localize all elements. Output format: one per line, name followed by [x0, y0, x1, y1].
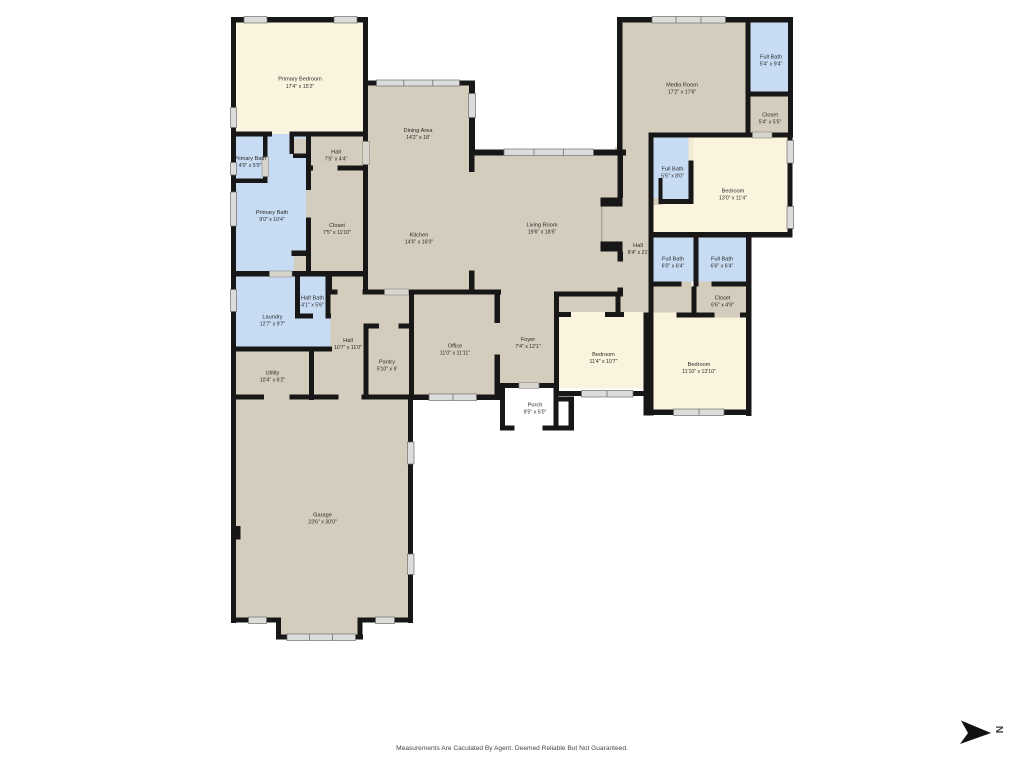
svg-text:Utility: Utility — [266, 371, 280, 377]
svg-text:13'0" x 11'4": 13'0" x 11'4" — [719, 196, 747, 202]
svg-text:17'4" x 15'2": 17'4" x 15'2" — [286, 84, 315, 90]
svg-text:Dining Area: Dining Area — [404, 128, 434, 134]
svg-text:Closet: Closet — [715, 296, 731, 302]
svg-text:Hall: Hall — [331, 150, 341, 156]
svg-text:7'5" x 4'4": 7'5" x 4'4" — [325, 157, 348, 163]
svg-text:Kitchen: Kitchen — [410, 233, 429, 239]
svg-text:9'5" x 5'0": 9'5" x 5'0" — [524, 410, 547, 416]
svg-text:Pantry: Pantry — [379, 360, 395, 366]
svg-text:4'1" x 5'6": 4'1" x 5'6" — [301, 303, 324, 309]
svg-text:5'4" x 5'5": 5'4" x 5'5" — [759, 120, 782, 126]
svg-text:5'10" x 9': 5'10" x 9' — [377, 367, 398, 373]
svg-text:14'2" x 18': 14'2" x 18' — [406, 135, 430, 141]
svg-text:10'4" x 6'2": 10'4" x 6'2" — [260, 378, 286, 384]
svg-text:Measurements Are Caculated By: Measurements Are Caculated By Agent. Dee… — [396, 745, 628, 752]
svg-text:Full Bath: Full Bath — [661, 167, 683, 173]
svg-text:5'4" x 9'4": 5'4" x 9'4" — [760, 62, 783, 68]
svg-text:Closet: Closet — [762, 113, 778, 119]
svg-text:N: N — [993, 726, 1005, 734]
svg-text:Foyer: Foyer — [521, 337, 535, 343]
svg-text:7'4" x 12'1": 7'4" x 12'1" — [515, 344, 541, 350]
svg-text:8'4" x 21': 8'4" x 21' — [628, 250, 649, 256]
svg-text:Media Room: Media Room — [666, 83, 698, 89]
svg-text:Laundry: Laundry — [262, 315, 282, 321]
svg-text:19'6" x 18'5": 19'6" x 18'5" — [528, 230, 557, 236]
svg-text:7'5" x 11'10": 7'5" x 11'10" — [323, 230, 351, 236]
svg-text:Full Bath: Full Bath — [711, 257, 733, 263]
svg-text:Hall: Hall — [343, 338, 353, 344]
svg-text:Primary Bedroom: Primary Bedroom — [278, 77, 322, 83]
svg-text:Half Bath: Half Bath — [301, 296, 324, 302]
svg-text:Primary Bath: Primary Bath — [234, 156, 266, 162]
svg-text:14'6" x 16'0": 14'6" x 16'0" — [405, 240, 434, 246]
svg-text:11'4" x 10'7": 11'4" x 10'7" — [589, 359, 617, 365]
svg-text:Bedroom: Bedroom — [722, 189, 745, 195]
svg-text:6'0" x 6'4": 6'0" x 6'4" — [662, 264, 685, 270]
svg-text:6'6" x 6'4": 6'6" x 6'4" — [711, 264, 734, 270]
svg-text:Office: Office — [448, 344, 463, 350]
svg-text:Full Bath: Full Bath — [760, 55, 782, 61]
svg-text:5'5" x 8'0": 5'5" x 8'0" — [661, 174, 684, 180]
svg-text:Closet: Closet — [329, 223, 345, 229]
svg-text:23'6" x 30'0": 23'6" x 30'0" — [308, 520, 337, 526]
svg-text:11'0" x 11'11": 11'0" x 11'11" — [440, 351, 470, 357]
svg-text:17'2" x 17'6": 17'2" x 17'6" — [668, 90, 697, 96]
svg-text:Porch: Porch — [528, 403, 543, 409]
svg-text:6'6" x 4'9": 6'6" x 4'9" — [711, 303, 734, 309]
svg-text:Garage: Garage — [313, 513, 332, 519]
svg-text:Primary Bath: Primary Bath — [256, 210, 288, 216]
svg-text:12'7" x 9'7": 12'7" x 9'7" — [260, 322, 286, 328]
svg-text:Bedroom: Bedroom — [688, 362, 711, 368]
svg-text:4'0" x 5'0": 4'0" x 5'0" — [239, 163, 262, 169]
svg-text:9'0" x 10'4": 9'0" x 10'4" — [259, 217, 285, 223]
svg-text:Hall: Hall — [633, 243, 643, 249]
svg-text:11'10" x 13'10": 11'10" x 13'10" — [682, 369, 716, 375]
svg-text:10'7" x 11'0": 10'7" x 11'0" — [334, 345, 362, 351]
svg-text:Bedroom: Bedroom — [592, 352, 615, 358]
svg-text:Living Room: Living Room — [526, 223, 557, 229]
svg-text:Full Bath: Full Bath — [662, 257, 684, 263]
